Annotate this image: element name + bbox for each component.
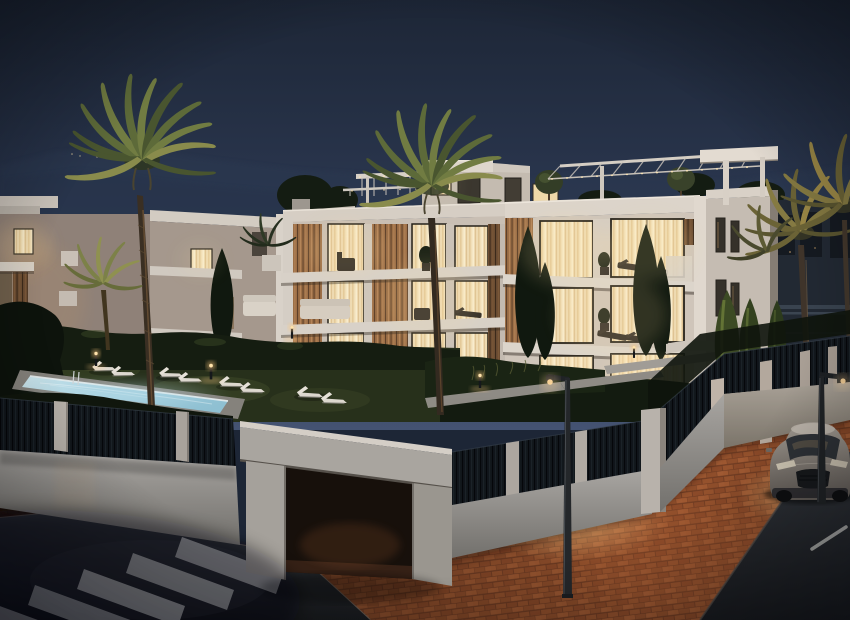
dusk-residence-render [0, 0, 850, 620]
